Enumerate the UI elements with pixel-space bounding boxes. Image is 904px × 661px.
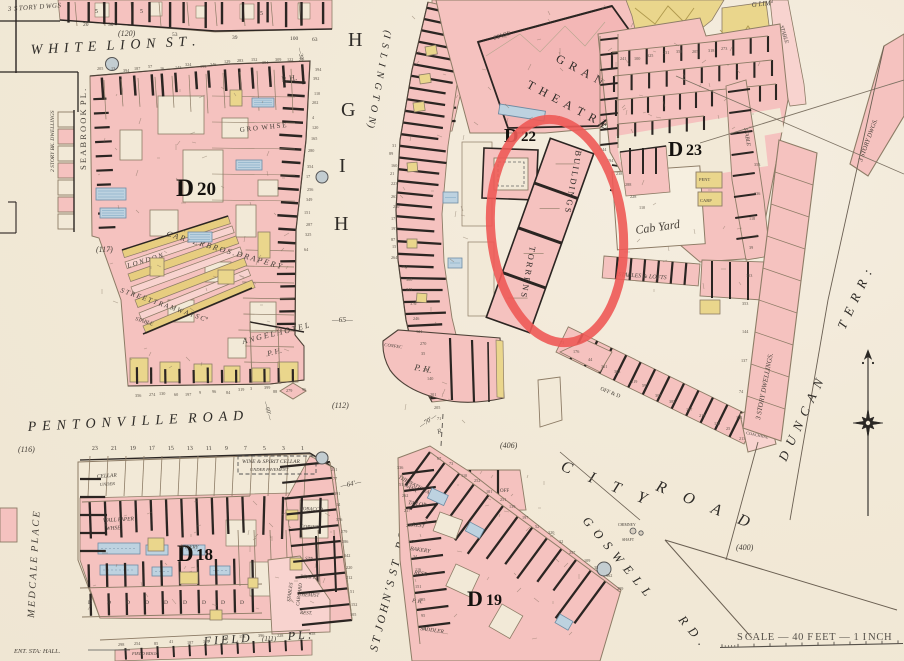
svg-text:353: 353 [754, 162, 760, 167]
svg-text:D: D [221, 600, 225, 606]
svg-text:187: 187 [187, 640, 193, 645]
svg-text:32: 32 [559, 539, 563, 544]
svg-text:354: 354 [307, 164, 314, 169]
svg-text:176: 176 [573, 349, 579, 354]
svg-text:D: D [202, 600, 206, 606]
svg-text:25: 25 [726, 426, 730, 431]
svg-text:223: 223 [391, 181, 397, 186]
svg-text:2 STORY BK. DWELLINGS: 2 STORY BK. DWELLINGS [50, 110, 56, 172]
svg-text:(406): (406) [500, 441, 518, 450]
svg-text:(116): (116) [18, 445, 35, 454]
svg-text:356: 356 [135, 393, 141, 398]
svg-text:9: 9 [225, 446, 228, 452]
svg-text:319: 319 [238, 387, 244, 392]
svg-text:349: 349 [306, 197, 312, 202]
svg-text:7: 7 [244, 446, 247, 452]
svg-text:15: 15 [392, 244, 396, 249]
svg-text:39: 39 [232, 35, 238, 41]
svg-text:13: 13 [111, 66, 115, 71]
svg-text:251: 251 [331, 467, 337, 472]
svg-text:217: 217 [404, 508, 410, 513]
svg-text:UNDER: UNDER [100, 481, 116, 487]
svg-text:D: D [145, 600, 149, 606]
svg-text:39: 39 [749, 245, 753, 250]
svg-text:35: 35 [594, 565, 598, 570]
svg-text:299: 299 [617, 586, 623, 591]
svg-text:376: 376 [336, 517, 342, 522]
svg-text:105: 105 [350, 612, 356, 617]
svg-text:305: 305 [655, 393, 661, 398]
svg-text:19: 19 [130, 446, 136, 452]
svg-text:SHAFT: SHAFT [622, 538, 635, 542]
svg-text:CHIMNEY: CHIMNEY [618, 523, 636, 527]
svg-text:87: 87 [391, 237, 395, 242]
svg-text:31: 31 [392, 143, 396, 148]
svg-text:3: 3 [250, 386, 252, 391]
svg-text:220: 220 [346, 565, 352, 570]
svg-text:197: 197 [522, 515, 528, 520]
svg-text:63: 63 [312, 37, 318, 43]
svg-text:140: 140 [427, 376, 433, 381]
svg-text:264: 264 [391, 255, 398, 260]
svg-text:(120): (120) [118, 29, 136, 38]
svg-text:WHSE.: WHSE. [106, 525, 122, 532]
svg-text:13: 13 [187, 446, 193, 452]
svg-text:D: D [183, 600, 187, 606]
svg-text:D: D [668, 137, 683, 161]
svg-text:117: 117 [408, 539, 414, 544]
svg-text:151: 151 [415, 584, 421, 589]
svg-text:STA.: STA. [305, 557, 314, 562]
svg-text:270: 270 [420, 341, 426, 346]
svg-text:158: 158 [239, 634, 245, 639]
svg-text:263: 263 [391, 194, 397, 199]
svg-text:5: 5 [95, 9, 98, 15]
svg-text:220: 220 [406, 523, 412, 528]
svg-text:100: 100 [290, 36, 299, 42]
svg-text:11: 11 [206, 446, 212, 452]
svg-text:D: D [176, 175, 194, 202]
svg-text:D: D [164, 600, 168, 606]
svg-text:110: 110 [461, 473, 467, 478]
svg-text:243: 243 [406, 287, 412, 292]
svg-text:110: 110 [314, 91, 320, 96]
svg-text:192: 192 [401, 264, 407, 269]
svg-text:129: 129 [224, 59, 230, 64]
svg-text:41: 41 [169, 639, 173, 644]
svg-text:231: 231 [663, 50, 669, 55]
svg-text:309: 309 [275, 57, 281, 62]
svg-text:5: 5 [140, 9, 143, 15]
svg-text:20: 20 [197, 179, 216, 200]
svg-text:52: 52 [535, 524, 539, 529]
svg-text:CHEMIST: CHEMIST [298, 593, 320, 599]
svg-text:77: 77 [333, 476, 337, 481]
svg-text:197: 197 [391, 226, 397, 231]
svg-text:19: 19 [486, 592, 502, 609]
svg-text:218: 218 [699, 413, 705, 418]
svg-text:130: 130 [159, 391, 165, 396]
svg-text:385: 385 [669, 399, 675, 404]
svg-text:S E A B R O O K P L .: S E A B R O O K P L . [78, 89, 88, 170]
svg-text:153: 153 [746, 273, 752, 278]
svg-text:88: 88 [273, 389, 277, 394]
svg-text:396: 396 [258, 633, 264, 638]
svg-text:311: 311 [203, 639, 209, 644]
svg-text:WINE & SPIRIT CELLAR: WINE & SPIRIT CELLAR [242, 459, 300, 465]
svg-text:110: 110 [714, 421, 720, 426]
svg-text:ENT. STA: HALL.: ENT. STA: HALL. [13, 648, 61, 655]
svg-text:228: 228 [277, 633, 283, 638]
svg-text:73: 73 [449, 461, 453, 466]
svg-text:DRAPER: DRAPER [299, 575, 319, 581]
svg-text:152: 152 [251, 57, 257, 62]
svg-text:S CALE — 40 F EET — 1 I NCH: S CALE — 40 F EET — 1 I NCH [737, 632, 892, 643]
svg-text:137: 137 [741, 358, 747, 363]
svg-text:35: 35 [421, 351, 425, 356]
svg-text:205: 205 [434, 405, 440, 410]
svg-text:342: 342 [344, 553, 350, 558]
svg-text:59: 59 [642, 383, 646, 388]
svg-text:283: 283 [237, 58, 243, 63]
svg-text:325: 325 [647, 53, 653, 58]
svg-text:318: 318 [708, 48, 714, 53]
svg-text:5: 5 [263, 446, 266, 452]
svg-text:67: 67 [437, 456, 441, 461]
svg-text:51: 51 [350, 589, 354, 594]
svg-text:23: 23 [686, 142, 702, 159]
svg-text:394: 394 [123, 68, 130, 73]
svg-text:89: 89 [389, 151, 393, 156]
svg-text:110: 110 [639, 205, 645, 210]
svg-text:151: 151 [304, 210, 310, 215]
svg-text:(112): (112) [332, 401, 349, 410]
svg-text:122: 122 [736, 415, 742, 420]
svg-text:—65—: —65— [331, 315, 353, 324]
svg-text:30: 30 [108, 22, 114, 28]
svg-text:25: 25 [299, 57, 303, 62]
svg-text:201: 201 [430, 392, 436, 397]
svg-text:95: 95 [421, 613, 425, 618]
svg-text:H: H [348, 29, 362, 51]
svg-text:158: 158 [309, 631, 315, 636]
svg-text:16: 16 [160, 66, 164, 71]
svg-text:5: 5 [293, 631, 295, 636]
svg-text:96: 96 [212, 389, 216, 394]
svg-text:187: 187 [134, 66, 140, 71]
svg-text:144: 144 [742, 329, 749, 334]
svg-text:399: 399 [264, 385, 270, 390]
svg-text:96: 96 [302, 387, 306, 392]
svg-text:241: 241 [620, 56, 626, 61]
svg-text:57: 57 [148, 64, 152, 69]
svg-text:205: 205 [692, 49, 698, 54]
svg-text:336: 336 [397, 465, 403, 470]
svg-text:OFF: OFF [500, 489, 509, 494]
svg-text:353: 353 [742, 301, 748, 306]
svg-text:213: 213 [739, 436, 745, 441]
svg-text:346: 346 [210, 62, 216, 67]
svg-text:252: 252 [474, 478, 480, 483]
svg-text:FIELD BDGS: FIELD BDGS [131, 651, 158, 656]
svg-text:246: 246 [413, 316, 419, 321]
svg-text:51: 51 [399, 482, 403, 487]
svg-text:101: 101 [486, 489, 492, 494]
svg-text:361: 361 [601, 364, 607, 369]
svg-text:287: 287 [306, 222, 312, 227]
svg-text:139: 139 [509, 504, 515, 509]
svg-text:279: 279 [341, 529, 347, 534]
svg-text:219: 219 [631, 379, 637, 384]
svg-text:324: 324 [185, 62, 192, 67]
svg-text:205: 205 [97, 66, 103, 71]
svg-text:251: 251 [500, 497, 506, 502]
svg-text:D: D [467, 586, 483, 611]
svg-text:202: 202 [312, 100, 318, 105]
svg-text:165: 165 [311, 136, 317, 141]
svg-text:G: G [341, 99, 355, 121]
svg-text:160: 160 [391, 163, 397, 168]
svg-text:280: 280 [308, 148, 314, 153]
svg-text:TOBACCO: TOBACCO [300, 507, 323, 513]
svg-text:71: 71 [437, 416, 441, 421]
svg-text:279: 279 [286, 388, 292, 393]
svg-text:107: 107 [686, 407, 692, 412]
svg-text:85: 85 [154, 641, 158, 646]
svg-text:142: 142 [175, 65, 181, 70]
svg-text:358: 358 [676, 49, 682, 54]
svg-text:394: 394 [262, 60, 269, 65]
svg-text:363: 363 [614, 369, 620, 374]
svg-text:(400): (400) [736, 543, 754, 552]
svg-text:120: 120 [312, 125, 318, 130]
svg-text:17: 17 [391, 216, 395, 221]
svg-text:325: 325 [305, 232, 311, 237]
svg-text:121: 121 [416, 329, 422, 334]
svg-text:362: 362 [606, 573, 612, 578]
svg-text:I: I [339, 155, 346, 177]
svg-text:300: 300 [406, 277, 412, 282]
svg-text:262: 262 [402, 493, 408, 498]
svg-text:197: 197 [185, 392, 191, 397]
svg-text:21: 21 [390, 171, 394, 176]
svg-text:152: 152 [351, 602, 357, 607]
svg-text:394: 394 [315, 67, 322, 72]
svg-text:298: 298 [118, 642, 124, 647]
svg-text:193: 193 [200, 64, 206, 69]
svg-text:336: 336 [754, 191, 760, 196]
svg-text:288: 288 [625, 182, 631, 187]
svg-text:109: 109 [584, 558, 590, 563]
svg-text:100: 100 [634, 56, 640, 61]
svg-text:116: 116 [415, 567, 421, 572]
svg-text:CORSET: CORSET [300, 525, 320, 531]
svg-text:D: D [88, 600, 92, 606]
svg-text:17: 17 [306, 174, 310, 179]
svg-text:23: 23 [92, 446, 98, 452]
svg-text:(117): (117) [96, 245, 113, 254]
svg-text:PENT: PENT [699, 177, 711, 182]
svg-text:256: 256 [307, 187, 313, 192]
svg-text:122: 122 [287, 57, 293, 62]
svg-text:212: 212 [346, 575, 352, 580]
svg-text:17: 17 [149, 446, 155, 452]
svg-text:254: 254 [134, 641, 141, 646]
svg-text:60: 60 [174, 392, 178, 397]
svg-text:21: 21 [111, 446, 117, 452]
svg-text:348: 348 [222, 636, 228, 641]
svg-text:228: 228 [630, 194, 636, 199]
svg-text:D: D [107, 600, 111, 606]
svg-text:15: 15 [168, 446, 174, 452]
svg-text:D: D [240, 600, 244, 606]
svg-text:99: 99 [422, 626, 426, 631]
svg-text:H: H [334, 213, 348, 235]
svg-text:391: 391 [334, 491, 340, 496]
svg-text:257: 257 [569, 550, 575, 555]
svg-text:20: 20 [83, 22, 89, 28]
svg-text:D: D [126, 600, 130, 606]
svg-text:CARP: CARP [700, 198, 712, 203]
svg-text:3: 3 [282, 446, 285, 452]
svg-text:1: 1 [301, 446, 304, 452]
svg-text:274: 274 [149, 392, 156, 397]
svg-text:286: 286 [342, 539, 348, 544]
svg-text:5: 5 [260, 11, 263, 17]
svg-text:230: 230 [393, 204, 399, 209]
svg-text:392: 392 [313, 76, 319, 81]
svg-text:295: 295 [419, 597, 425, 602]
svg-text:9: 9 [199, 390, 201, 395]
svg-text:273: 273 [721, 46, 727, 51]
svg-text:238: 238 [616, 171, 622, 176]
svg-text:320: 320 [548, 530, 554, 535]
svg-text:118: 118 [749, 216, 755, 221]
svg-text:BAKERY: BAKERY [180, 545, 200, 551]
